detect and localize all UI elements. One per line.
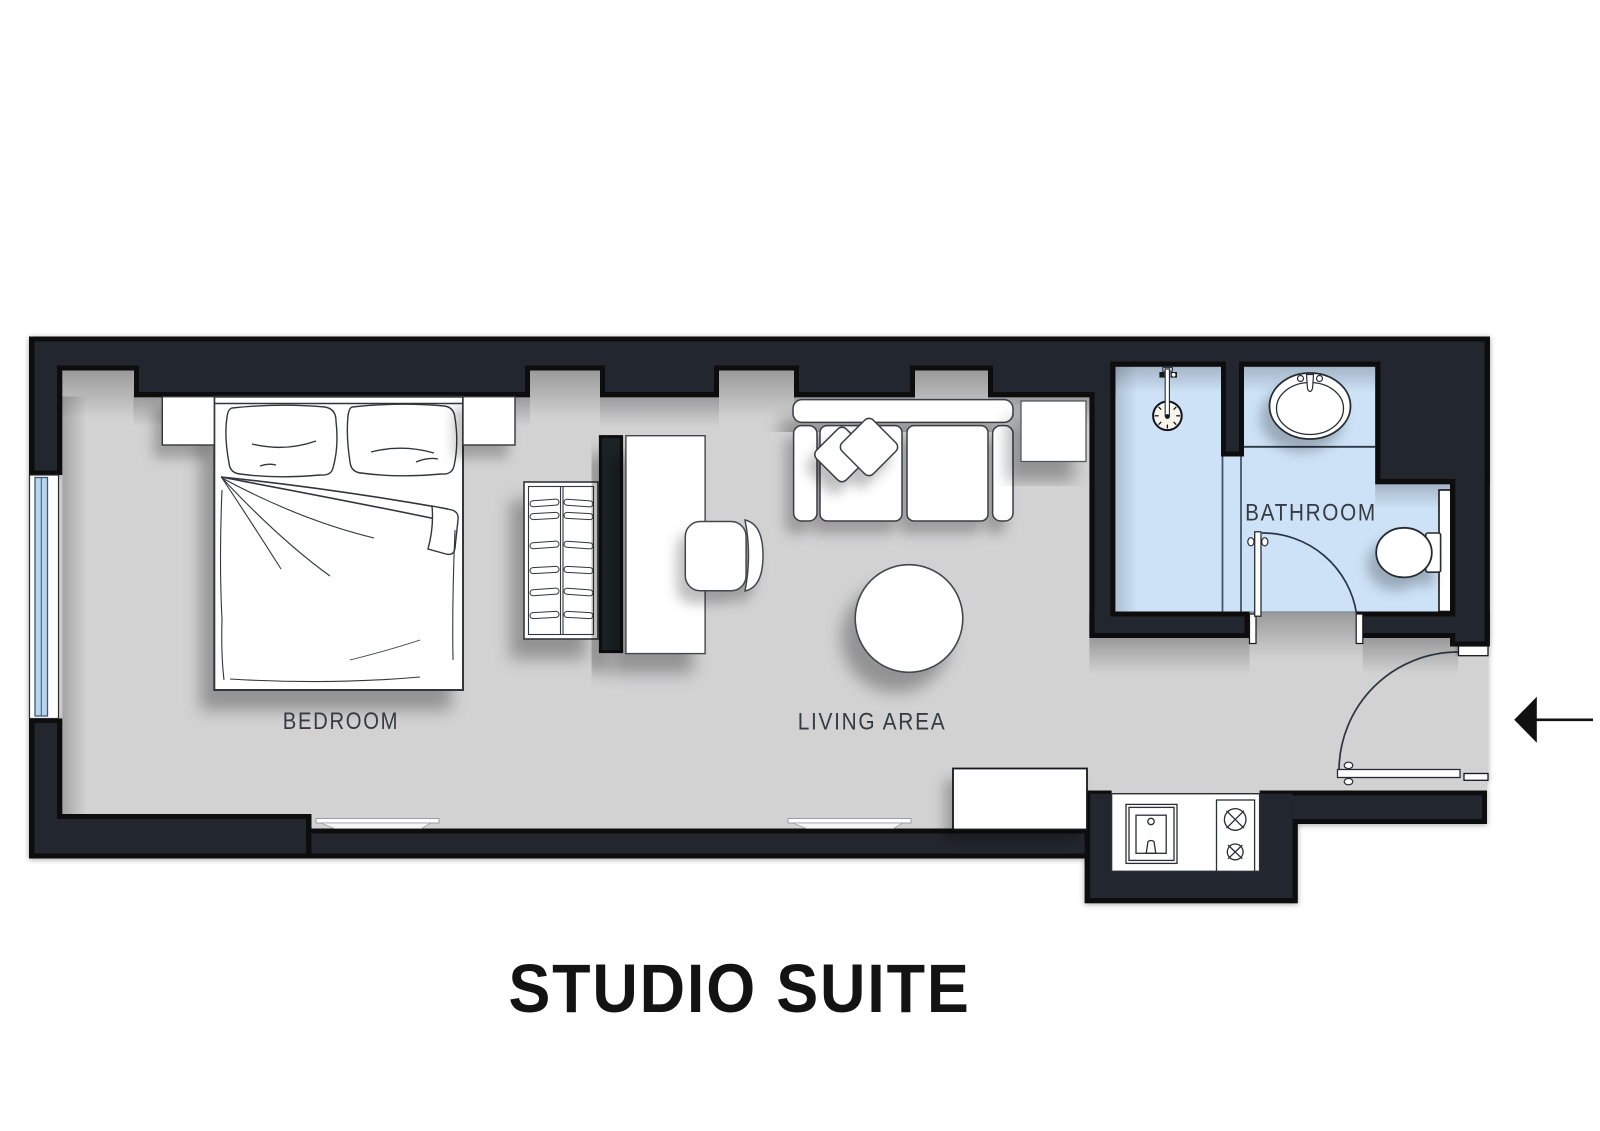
- svg-text:BATHROOM: BATHROOM: [1245, 498, 1377, 526]
- svg-text:LIVING AREA: LIVING AREA: [798, 707, 947, 735]
- svg-text:BEDROOM: BEDROOM: [283, 707, 399, 734]
- svg-text:STUDIO SUITE: STUDIO SUITE: [508, 949, 970, 1026]
